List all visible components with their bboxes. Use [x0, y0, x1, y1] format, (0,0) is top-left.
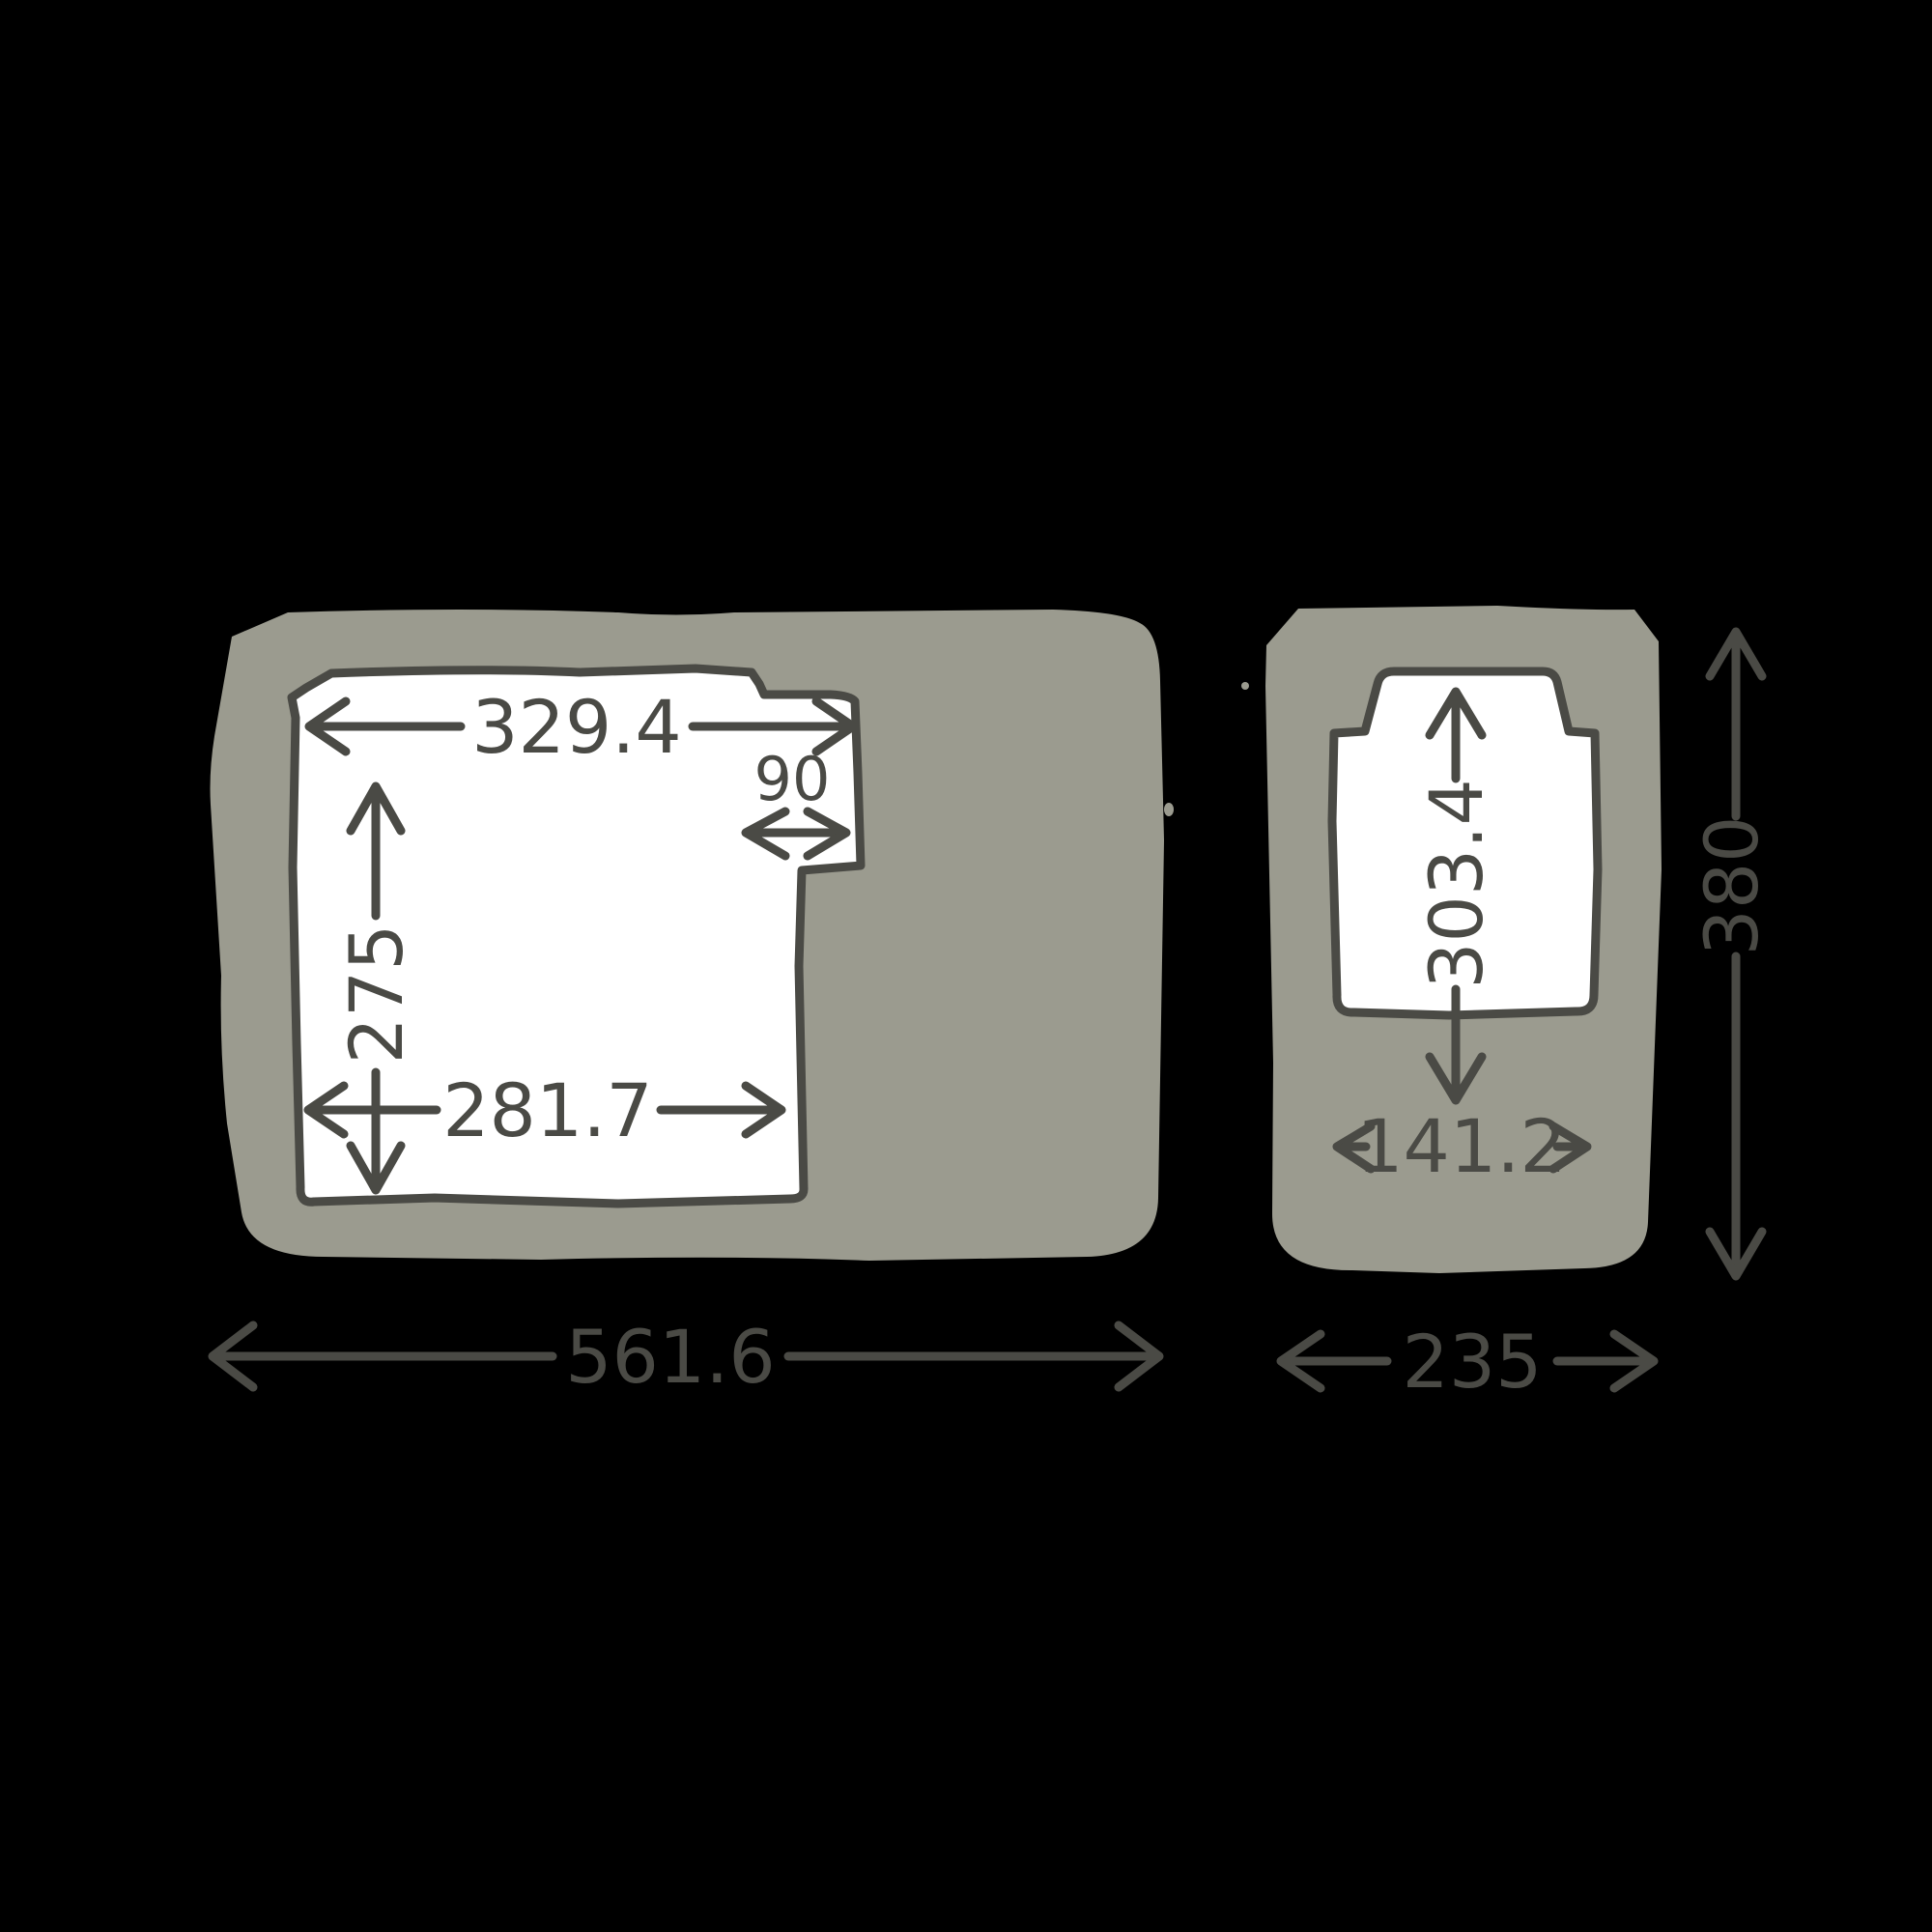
dim-label-front-overall-width: 235 [1402, 1319, 1542, 1405]
dim-front-opening-width: 141.2 [1337, 1103, 1587, 1189]
dim-label-front-opening-height: 303.4 [1413, 779, 1499, 989]
dim-label-opening-height: 275 [333, 923, 419, 1064]
dim-label-overall-width: 561.6 [565, 1314, 776, 1400]
dim-label-front-opening-width: 141.2 [1356, 1103, 1567, 1189]
dim-overall-width: 561.6 [213, 1314, 1159, 1400]
stray-mark [1241, 682, 1249, 690]
dim-label-notch-width: 90 [754, 744, 831, 814]
front-view: 303.4 141.2 380 235 [1265, 606, 1775, 1405]
diagram-svg: 329.4 90 275 281.7 [0, 0, 1932, 1932]
stray-mark [1164, 803, 1174, 816]
dim-label-opening-top-width: 329.4 [471, 684, 682, 770]
dim-label-opening-bottom-width: 281.7 [442, 1067, 653, 1153]
dim-overall-height: 380 [1689, 632, 1775, 1276]
dim-front-overall-width: 235 [1281, 1319, 1654, 1405]
dimension-diagram: 329.4 90 275 281.7 [0, 0, 1932, 1932]
side-view: 329.4 90 275 281.7 [211, 610, 1165, 1400]
dim-label-overall-height: 380 [1689, 815, 1775, 955]
